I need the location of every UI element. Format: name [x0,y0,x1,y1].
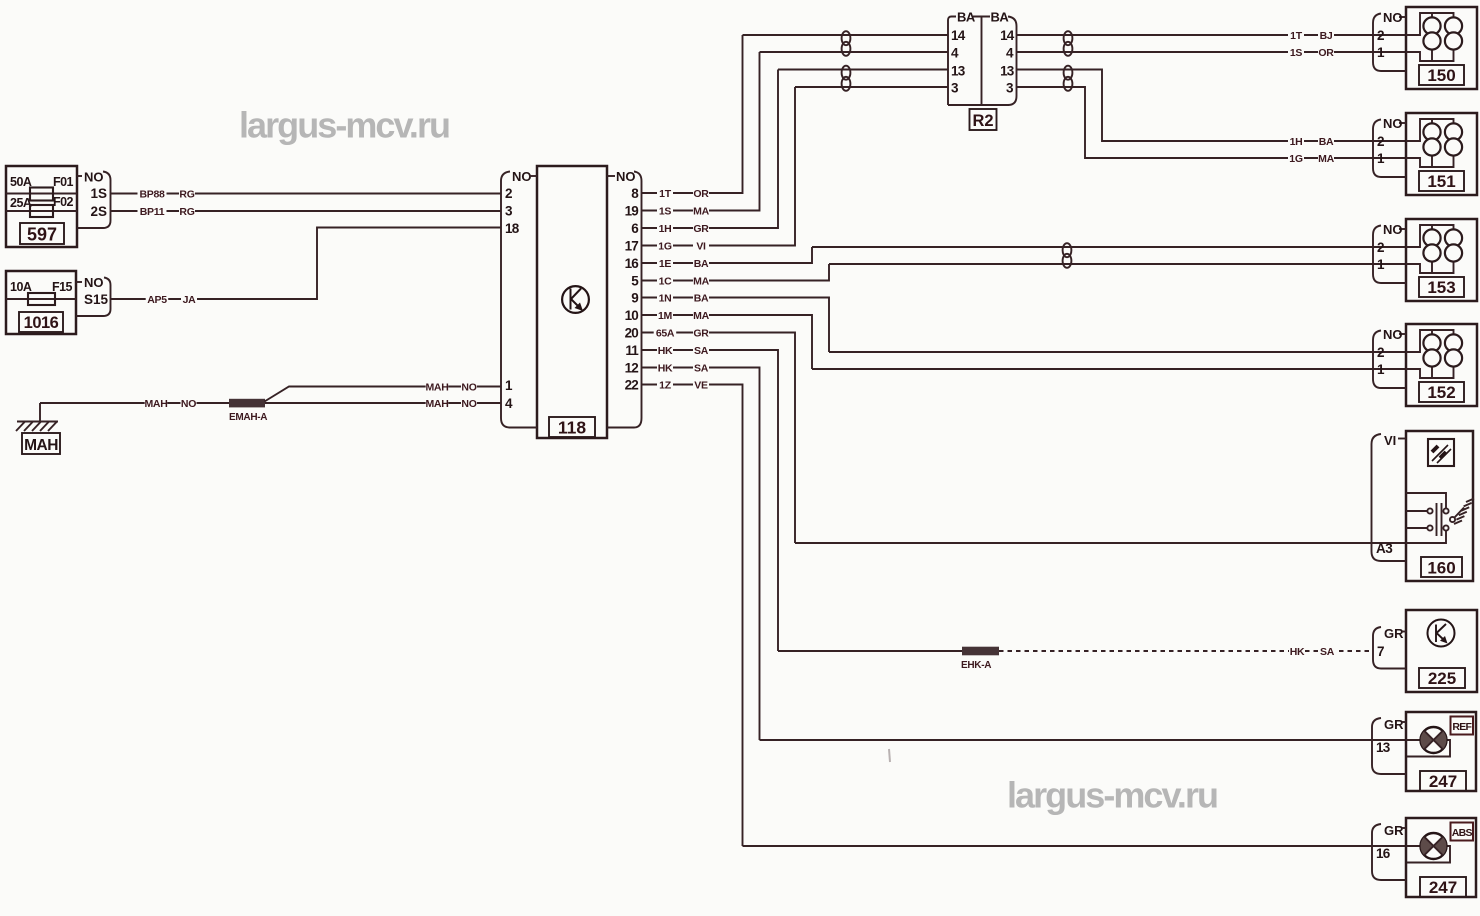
svg-text:HK: HK [658,345,673,357]
svg-text:1S: 1S [1290,47,1303,59]
svg-text:MAH: MAH [425,381,448,393]
svg-text:RG: RG [179,188,194,200]
svg-text:SA: SA [694,362,709,374]
svg-text:1Z: 1Z [659,379,672,391]
svg-text:MA: MA [693,205,709,217]
svg-text:R2: R2 [972,112,993,130]
svg-text:OR: OR [1318,47,1334,59]
svg-text:247: 247 [1429,878,1457,897]
svg-text:17: 17 [625,239,639,254]
svg-text:118: 118 [558,418,586,438]
svg-text:1G: 1G [658,240,672,252]
svg-text:EHK-A: EHK-A [961,660,991,671]
svg-text:MA: MA [693,275,709,287]
svg-text:F02: F02 [53,195,74,209]
svg-text:3: 3 [505,204,513,219]
svg-text:BP11: BP11 [140,206,165,218]
svg-text:2: 2 [1377,134,1385,149]
svg-text:largus-mcv.ru: largus-mcv.ru [1007,775,1217,816]
svg-text:12: 12 [625,361,639,376]
svg-text:1S: 1S [90,186,107,201]
svg-text:11: 11 [625,343,639,358]
svg-text:1S: 1S [659,205,672,217]
svg-text:A3: A3 [1376,541,1393,556]
svg-text:152: 152 [1427,383,1455,402]
svg-text:247: 247 [1429,772,1457,791]
svg-text:18: 18 [505,221,520,236]
svg-text:9: 9 [631,291,638,306]
svg-text:7: 7 [1377,644,1385,659]
svg-text:BA: BA [694,292,709,304]
svg-text:10: 10 [625,308,639,323]
svg-text:BA: BA [1319,136,1334,148]
svg-text:1N: 1N [659,292,672,304]
svg-text:NO: NO [84,170,104,185]
svg-text:20: 20 [625,326,639,341]
svg-text:NO: NO [84,275,104,290]
svg-text:1M: 1M [658,310,673,322]
svg-text:MAH: MAH [24,437,58,454]
svg-text:NO: NO [1383,10,1403,25]
svg-text:16: 16 [1376,846,1391,861]
svg-text:13: 13 [951,64,966,79]
svg-text:14: 14 [1000,28,1015,43]
svg-text:1: 1 [1377,362,1385,377]
svg-text:1: 1 [1377,257,1385,272]
svg-text:160: 160 [1427,559,1455,578]
svg-text:MA: MA [693,310,709,322]
svg-text:F01: F01 [53,175,74,189]
svg-text:597: 597 [27,225,57,245]
svg-text:BA: BA [694,258,709,270]
svg-text:AP5: AP5 [147,294,167,306]
svg-text:MAH: MAH [144,398,167,410]
svg-text:3: 3 [951,81,959,96]
svg-text:16: 16 [625,256,640,271]
svg-text:1T: 1T [1290,30,1303,42]
svg-text:JA: JA [183,294,197,306]
svg-text:1: 1 [505,378,513,393]
svg-text:MA: MA [1318,153,1334,165]
svg-text:4: 4 [505,396,513,411]
svg-text:SA: SA [1320,646,1335,658]
svg-text:14: 14 [951,28,966,43]
svg-text:153: 153 [1427,278,1455,297]
svg-text:HK: HK [658,362,673,374]
svg-text:2: 2 [1377,345,1385,360]
svg-text:S15: S15 [84,292,109,307]
svg-text:150: 150 [1427,66,1455,85]
svg-text:VE: VE [694,379,708,391]
svg-text:10A: 10A [10,280,32,294]
svg-text:BJ: BJ [1320,30,1333,42]
svg-text:1: 1 [1377,45,1385,60]
svg-text:OR: OR [693,188,709,200]
svg-text:4: 4 [951,46,959,61]
svg-text:22: 22 [625,378,639,393]
svg-text:19: 19 [625,204,639,219]
svg-text:50A: 50A [10,175,32,189]
svg-text:SA: SA [694,345,709,357]
svg-text:2: 2 [505,186,513,201]
svg-text:1: 1 [1377,151,1385,166]
svg-text:NO: NO [461,398,476,410]
svg-text:151: 151 [1427,172,1455,191]
svg-text:BA: BA [957,10,976,25]
svg-text:1E: 1E [659,258,672,270]
svg-text:NO: NO [512,169,532,184]
svg-text:2: 2 [1377,240,1385,255]
svg-text:65A: 65A [656,327,675,339]
svg-text:MAH: MAH [425,398,448,410]
svg-text:NO: NO [1383,327,1403,342]
svg-text:NO: NO [461,381,476,393]
svg-text:HK: HK [1290,646,1305,658]
svg-text:largus-mcv.ru: largus-mcv.ru [239,105,449,146]
svg-text:1G: 1G [1289,153,1303,165]
svg-text:GR: GR [693,327,709,339]
svg-text:REF: REF [1452,721,1472,733]
svg-text:GR: GR [1384,626,1404,641]
svg-text:BA: BA [991,10,1010,25]
svg-text:F15: F15 [52,280,73,294]
svg-text:1016: 1016 [24,314,59,332]
svg-text:3: 3 [1006,81,1014,96]
svg-text:13: 13 [1376,740,1391,755]
svg-text:NO: NO [1383,222,1403,237]
svg-text:GR: GR [1384,717,1404,732]
svg-text:225: 225 [1428,669,1456,688]
svg-text:13: 13 [1000,64,1015,79]
svg-text:RG: RG [179,206,194,218]
svg-text:4: 4 [1006,46,1014,61]
svg-text:1C: 1C [659,275,673,287]
svg-text:25A: 25A [10,196,32,210]
svg-text:ABS: ABS [1452,827,1473,839]
svg-text:2: 2 [1377,28,1385,43]
svg-text:GR: GR [693,223,709,235]
svg-text:VI: VI [696,240,706,252]
svg-text:NO: NO [1383,116,1403,131]
svg-text:VI: VI [1384,433,1396,448]
svg-text:NO: NO [616,169,636,184]
svg-text:NO: NO [181,398,196,410]
svg-text:EMAH-A: EMAH-A [229,412,267,423]
svg-text:BP88: BP88 [139,188,165,200]
svg-text:1H: 1H [659,223,672,235]
svg-text:GR: GR [1384,823,1404,838]
svg-text:1T: 1T [659,188,672,200]
svg-text:2S: 2S [90,204,107,219]
svg-text:1H: 1H [1290,136,1303,148]
